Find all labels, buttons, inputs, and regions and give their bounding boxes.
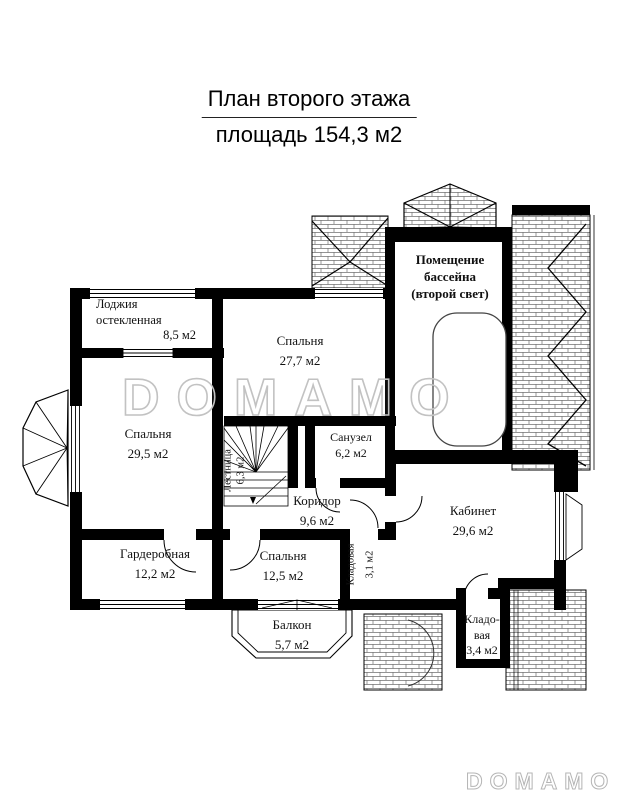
room-label-bathroom: Санузел 6,2 м2 [330, 430, 372, 461]
room-area: 5,7 м2 [273, 635, 312, 655]
room-label-wardrobe: Гардеробная 12,2 м2 [120, 544, 190, 583]
room-area: 6,2 м2 [330, 446, 372, 462]
roof-right-strip [512, 205, 594, 470]
room-area: 27,7 м2 [277, 351, 324, 371]
room-label-office: Кабинет 29,6 м2 [450, 501, 496, 540]
room-area: 9,6 м2 [293, 511, 341, 531]
window-loggia-bottom [123, 348, 173, 358]
room-label-stairs-area: 6,3 м2 [236, 421, 247, 521]
room-label-loggia: Лоджия остекленная 8,5 м2 [96, 297, 202, 344]
watermark-corner: DOMAMO [466, 768, 615, 795]
room-name: Санузел [330, 430, 372, 446]
floor-plan-page: План второго этажа площадь 154,3 м2 [0, 0, 618, 800]
room-label-bedroom-left: Спальня 29,5 м2 [125, 424, 172, 463]
room-label-bedroom-top: Спальня 27,7 м2 [277, 331, 324, 370]
roof-top-left [312, 216, 388, 288]
window-office-right [554, 492, 582, 560]
door-arc-office [396, 496, 422, 522]
roof-bottom-right [506, 590, 586, 690]
door-arc-storage-corner [464, 574, 488, 598]
bay-window-turret [23, 390, 68, 506]
room-label-balcony: Балкон 5,7 м2 [273, 615, 312, 654]
room-name-line2: вая [464, 628, 499, 644]
watermark-center: DOMAMO [122, 368, 467, 428]
room-name: Балкон [273, 615, 312, 635]
room-name-line1: Кладо- [464, 612, 499, 628]
room-name: Коридор [293, 491, 341, 511]
room-area: 8,5 м2 [96, 328, 202, 344]
room-name: Спальня [260, 546, 307, 566]
door-arc-bedroom-bottom [230, 540, 260, 570]
room-label-pool-hall: Помещение бассейна (второй свет) [411, 252, 489, 303]
room-name-line3: (второй свет) [411, 286, 489, 303]
window-balcony-door [258, 599, 338, 610]
room-name2: остекленная [96, 313, 202, 329]
room-name: Лоджия [96, 297, 202, 313]
roof-turret-top [404, 184, 496, 228]
room-area: 12,5 м2 [260, 566, 307, 586]
window-wardrobe-bottom [100, 599, 185, 610]
room-label-storage-corner: Кладо- вая 3,4 м2 [464, 612, 499, 659]
room-area: 29,6 м2 [450, 521, 496, 541]
room-label-stairs-name: Лестница [223, 421, 234, 521]
room-name: Спальня [277, 331, 324, 351]
stairs-drawing [224, 426, 288, 506]
window-bay-left [70, 406, 82, 492]
room-label-storage-tall-name: Кладовая [346, 515, 357, 615]
room-name: Кабинет [450, 501, 496, 521]
room-name: Гардеробная [120, 544, 190, 564]
room-label-bedroom-bottom: Спальня 12,5 м2 [260, 546, 307, 585]
room-area: 29,5 м2 [125, 444, 172, 464]
room-label-storage-tall-area: 3,1 м2 [365, 515, 376, 615]
room-area: 3,4 м2 [464, 643, 499, 659]
room-name-line1: Помещение [411, 252, 489, 269]
window-bedroom-top [315, 288, 383, 299]
room-area: 12,2 м2 [120, 564, 190, 584]
room-name: Спальня [125, 424, 172, 444]
room-label-corridor: Коридор 9,6 м2 [293, 491, 341, 530]
room-name-line2: бассейна [411, 269, 489, 286]
roof-bottom-center [364, 614, 442, 690]
